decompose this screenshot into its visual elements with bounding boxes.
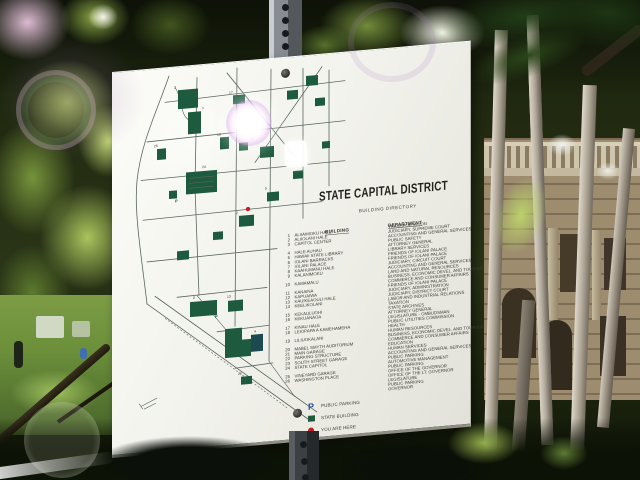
- post-hole: [300, 441, 307, 448]
- map-number: 3: [174, 85, 176, 89]
- legend-label: YOU ARE HERE: [321, 424, 356, 432]
- lens-flare-ring: [16, 70, 96, 150]
- building-name: CAPITOL CENTER: [295, 239, 332, 247]
- lit-leaves: [448, 422, 520, 464]
- post-hole: [282, 43, 289, 50]
- lit-leaves: [540, 436, 588, 470]
- post-hole: [301, 458, 308, 465]
- map-number: 4: [254, 329, 256, 333]
- map-parking-mark: P: [175, 198, 178, 203]
- sign-post-lower: [289, 431, 319, 480]
- map-number: 17: [229, 90, 233, 94]
- map-parking-mark: P: [215, 314, 218, 319]
- building-name: KAMAMALU: [295, 280, 319, 287]
- map-number: 26: [154, 144, 158, 148]
- directory-sign: 31172624181052813422 PP STATE CAPITAL DI…: [112, 41, 471, 458]
- building-list: 1ALIIAIMOKU HALE2ALIIOLANI HALE3CAPITOL …: [280, 225, 390, 385]
- map-number: 5: [265, 186, 267, 190]
- building-number: 9: [280, 274, 290, 279]
- building-name: KEELIKOLANI: [295, 302, 323, 309]
- state-building-glyph: [308, 415, 315, 421]
- map-number: 8: [193, 296, 195, 300]
- legend-label: STATE BUILDING: [321, 412, 359, 420]
- building-name: KEKUANAOA: [295, 315, 322, 322]
- pedestrian-figure: [14, 341, 23, 368]
- map-number: 13: [227, 295, 231, 299]
- column: [592, 230, 601, 320]
- map-number: 2: [236, 211, 238, 215]
- post-hole: [282, 30, 289, 37]
- pedestrian-figure-blue: [80, 348, 87, 359]
- post-hole: [282, 4, 289, 11]
- building-number: 3: [280, 243, 290, 248]
- lens-flare-hotspot: [88, 4, 118, 30]
- building-number: 16: [280, 318, 290, 323]
- map-number: 18: [217, 132, 221, 136]
- building-number: 24: [280, 366, 290, 371]
- column: [548, 228, 558, 320]
- lens-flare-square: [284, 140, 308, 167]
- legend-label: PUBLIC PARKING: [321, 400, 360, 408]
- sign-subtitle-text: BUILDING DIRECTORY: [359, 203, 417, 213]
- department-list: TRANSPORTATIONJUDICIARY, SUPREME COURTAC…: [388, 217, 473, 391]
- sign-post-upper: [269, 0, 302, 62]
- lens-flare-ring: [348, 2, 436, 82]
- building-number: 19: [280, 339, 290, 344]
- building-number: 26: [280, 379, 290, 384]
- background-building-wall: [72, 321, 90, 337]
- parking-glyph: P: [308, 402, 314, 412]
- building-name: LILIUOKALANI: [295, 336, 324, 343]
- map-number: 24: [202, 165, 206, 169]
- lens-flare-large: [226, 100, 272, 146]
- building-name: STATE CAPITOL: [295, 363, 328, 370]
- sky-hole: [596, 162, 620, 180]
- post-hole: [282, 17, 289, 24]
- map-legend: PPUBLIC PARKINGSTATE BUILDINGYOU ARE HER…: [308, 393, 399, 437]
- you-are-here-dot: [246, 207, 250, 212]
- sky-hole: [548, 134, 576, 156]
- state-building-icon: [308, 415, 317, 421]
- post-hole: [302, 474, 309, 480]
- map-number: 1: [202, 106, 204, 110]
- background-building-wall: [36, 316, 64, 338]
- parking-icon: P: [308, 402, 317, 412]
- building-number: 14: [280, 305, 290, 310]
- building-name: KALANIMOKU: [295, 271, 323, 278]
- building-number: 18: [280, 331, 290, 336]
- building-number: 10: [280, 282, 290, 287]
- photo-scene: 31172624181052813422 PP STATE CAPITAL DI…: [0, 0, 640, 480]
- map-number: 22: [238, 372, 242, 376]
